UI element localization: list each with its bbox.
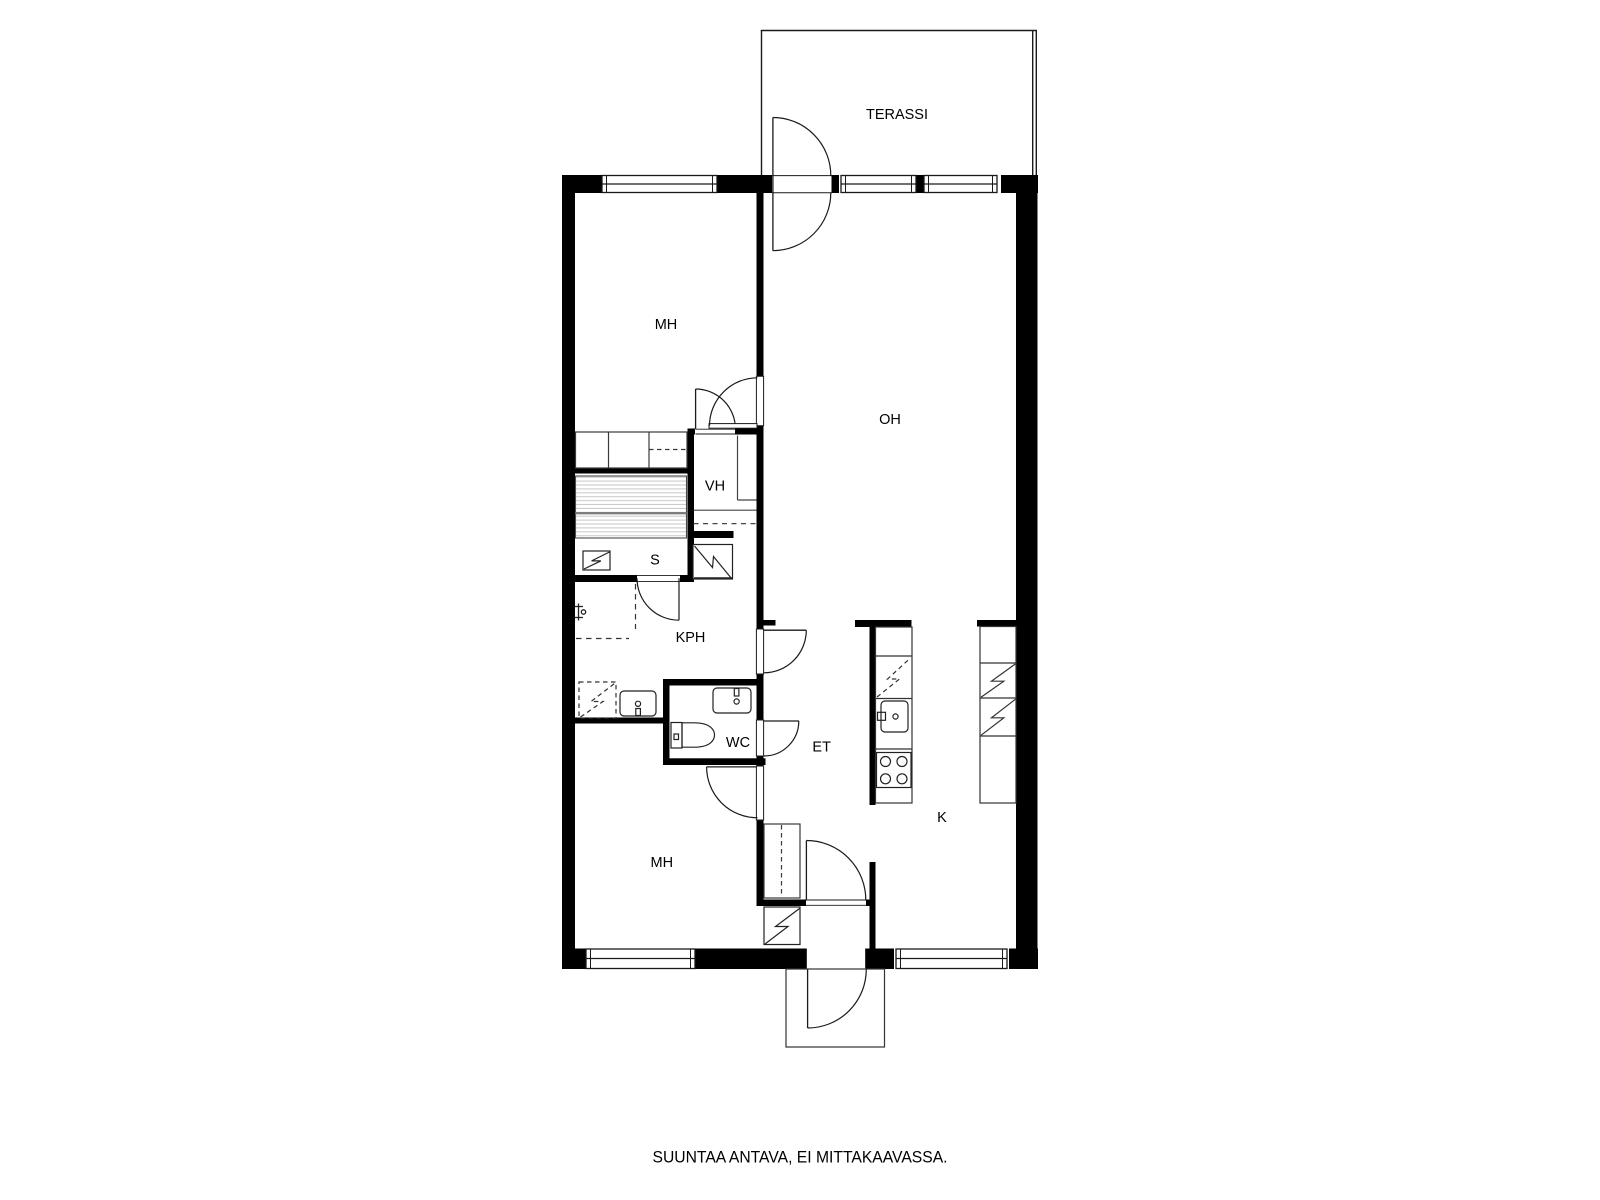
- svg-text:WC: WC: [726, 735, 750, 751]
- svg-text:MH: MH: [655, 317, 678, 333]
- svg-text:MH: MH: [651, 855, 674, 871]
- svg-text:KPH: KPH: [676, 630, 706, 646]
- svg-text:SUUNTAA ANTAVA, EI MITTAKAAVAS: SUUNTAA ANTAVA, EI MITTAKAAVASSA.: [653, 1148, 948, 1167]
- svg-text:VH: VH: [705, 478, 725, 494]
- svg-text:OH: OH: [879, 412, 901, 428]
- svg-text:TERASSI: TERASSI: [866, 107, 928, 123]
- svg-text:S: S: [650, 552, 660, 568]
- svg-text:K: K: [937, 810, 947, 826]
- svg-text:ET: ET: [812, 739, 831, 755]
